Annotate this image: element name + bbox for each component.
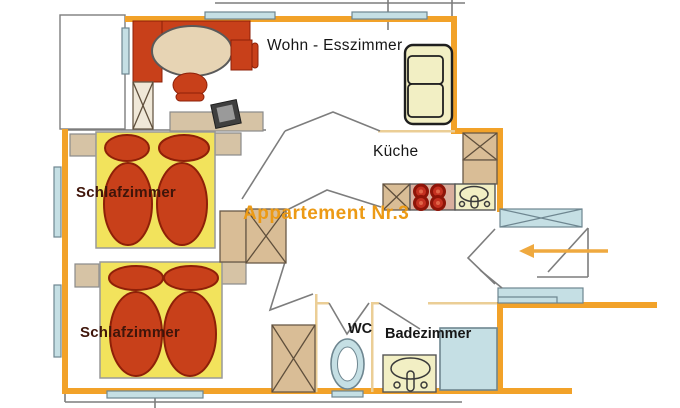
label-bathroom: Badezimmer [385,326,471,342]
label-apartment-title: Appartement Nr.3 [243,203,409,225]
wall-bath-top-left [371,302,379,305]
dining-table-icon [152,26,232,76]
hall-boundary-diagonal [242,131,285,199]
pillow-icon [109,266,163,290]
stair-line-4 [480,270,502,288]
toilet-icon [331,339,364,389]
neighbor-room-outline [60,15,125,129]
hall-boundary-bedroom [270,262,313,310]
wall-kitchen-right [497,128,503,212]
label-bedroom-1: Schlafzimmer [76,184,176,201]
pillow-icon [159,135,209,161]
chair-icon [231,40,258,70]
wall-wc-top [315,302,329,305]
nightstand-icon [220,262,246,284]
label-wc: WC [348,321,372,337]
kitchen-cabinet-icon [463,133,497,184]
wall-bath-right [497,302,503,394]
window-icon [332,391,363,397]
hall-boundary-peak-upper [285,112,380,131]
nightstand-icon [70,134,96,156]
nightstand-icon [215,133,241,155]
wall-bath-top-right [428,302,497,305]
wall-wc-right [371,302,374,392]
label-bedroom-2: Schlafzimmer [80,324,180,341]
wardrobe-icon [272,325,315,392]
entrance-door-swing-icon [468,229,495,284]
window-icon [205,12,275,19]
window-icon [107,391,203,398]
wall-left [62,129,68,394]
nightstand-icon [75,264,99,287]
wall-kitchen-boundary [378,130,455,133]
entry-x-window [500,209,582,227]
label-living-room: Wohn - Esszimmer [267,37,402,55]
kitchen-sink-icon [455,184,495,210]
pillow-icon [164,266,218,290]
pillow-icon [105,135,149,161]
window-icon [54,285,61,357]
stove-burners-icon [410,184,455,210]
washbasin-icon [383,355,436,392]
stair-step-icon [498,288,583,303]
chair-icon [173,73,207,101]
window-icon [54,167,61,237]
sofa-icon [405,45,452,124]
window-icon [352,12,427,19]
double-bed-icon [100,262,222,378]
window-icon [122,28,129,74]
tv-icon [211,100,241,129]
wardrobe-icon [133,82,153,129]
label-kitchen: Küche [373,143,418,161]
floor-plan: Wohn - Esszimmer Küche Appartement Nr.3 … [0,0,680,408]
